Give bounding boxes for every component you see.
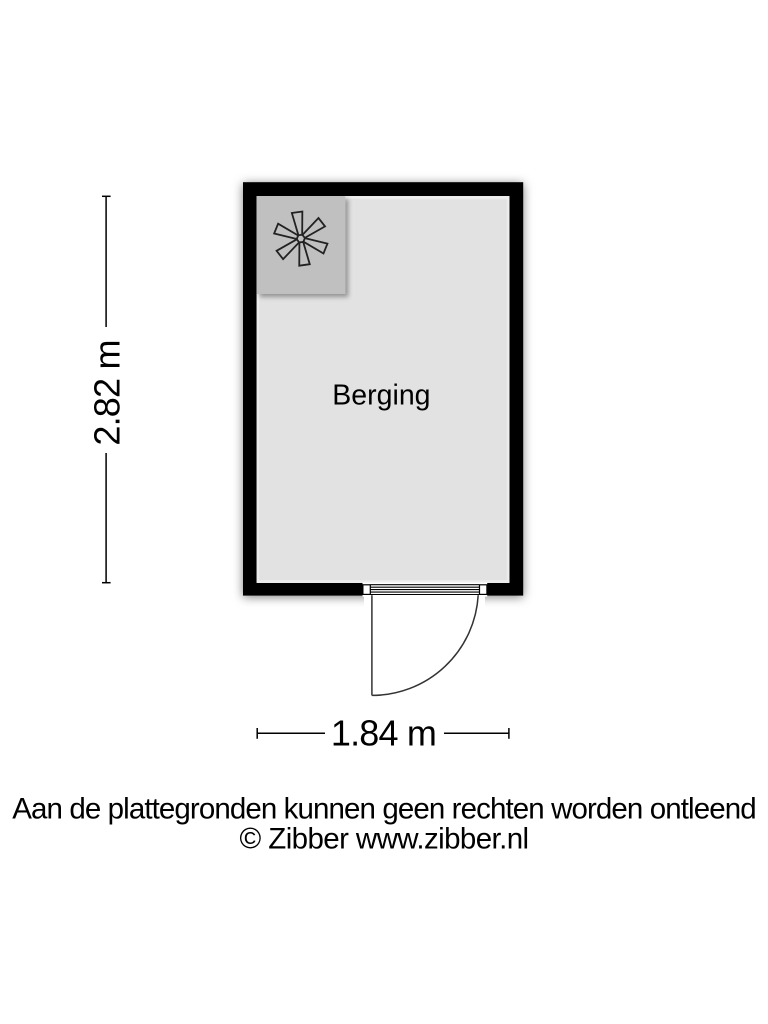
- svg-text:2.82 m: 2.82 m: [87, 340, 128, 445]
- svg-text:Berging: Berging: [332, 380, 430, 412]
- svg-text:Aan de plattegronden kunnen ge: Aan de plattegronden kunnen geen rechten…: [12, 793, 755, 826]
- svg-text:1.84 m: 1.84 m: [331, 712, 436, 753]
- svg-text:© Zibber www.zibber.nl: © Zibber www.zibber.nl: [240, 823, 529, 856]
